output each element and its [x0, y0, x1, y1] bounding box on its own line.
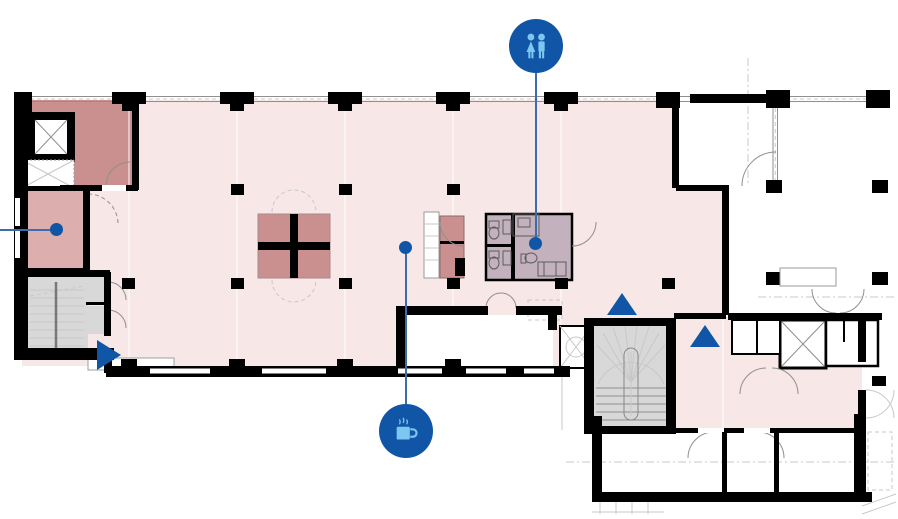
coffee-leader-line: [405, 253, 407, 405]
wc-block: [486, 214, 572, 280]
elevator-top-left: [22, 112, 75, 188]
direction-triangle-up-2: [690, 325, 720, 347]
window-wall-right: [773, 106, 778, 186]
coffee-target-dot: [399, 241, 412, 254]
restroom-icon: [519, 29, 553, 63]
left-room-target-dot: [50, 223, 63, 236]
restroom-leader-line: [535, 71, 537, 239]
direction-triangle-right: [97, 340, 121, 370]
entrance-hall: [679, 104, 773, 186]
coffee-marker[interactable]: [379, 404, 433, 458]
floor-plan-svg: [0, 0, 898, 519]
direction-triangle-up-1: [607, 293, 637, 315]
restroom-marker[interactable]: [509, 19, 563, 73]
floor-plan-canvas: [0, 0, 898, 519]
recess-void: [405, 315, 553, 368]
left-room-leader-line: [0, 229, 51, 231]
restroom-target-dot: [529, 237, 542, 250]
elevator-right: [780, 320, 826, 368]
coffee-icon: [389, 414, 423, 448]
